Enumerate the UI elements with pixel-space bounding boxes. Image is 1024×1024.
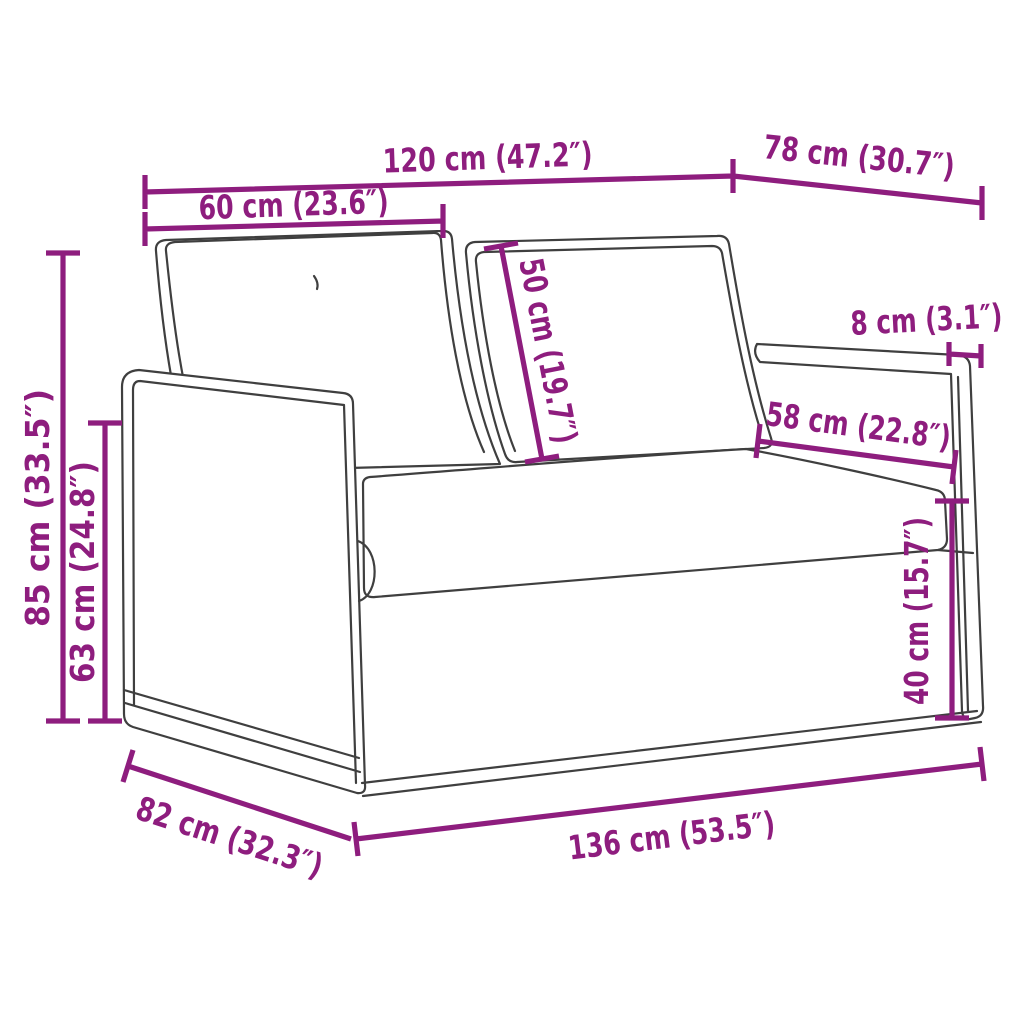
dimension-diagram: 120 cm (47.2″) 78 cm (30.7″) 60 cm (23.6… [0, 0, 1024, 1024]
dimension-label-armrest-height: 63 cm (24.8″) [63, 461, 102, 683]
dimension-label-back-cushion-width: 60 cm (23.6″) [198, 182, 389, 228]
dimension-label-overall-height: 85 cm (33.5″) [18, 389, 57, 627]
dimension-label-back-width: 120 cm (47.2″) [382, 134, 593, 180]
dimension-label-armrest-width: 8 cm (3.1″) [849, 296, 1003, 343]
dimension-label-seat-height: 40 cm (15.7″) [897, 517, 936, 705]
left-armrest [122, 370, 365, 793]
diagram-canvas: 120 cm (47.2″) 78 cm (30.7″) 60 cm (23.6… [0, 0, 1024, 1024]
